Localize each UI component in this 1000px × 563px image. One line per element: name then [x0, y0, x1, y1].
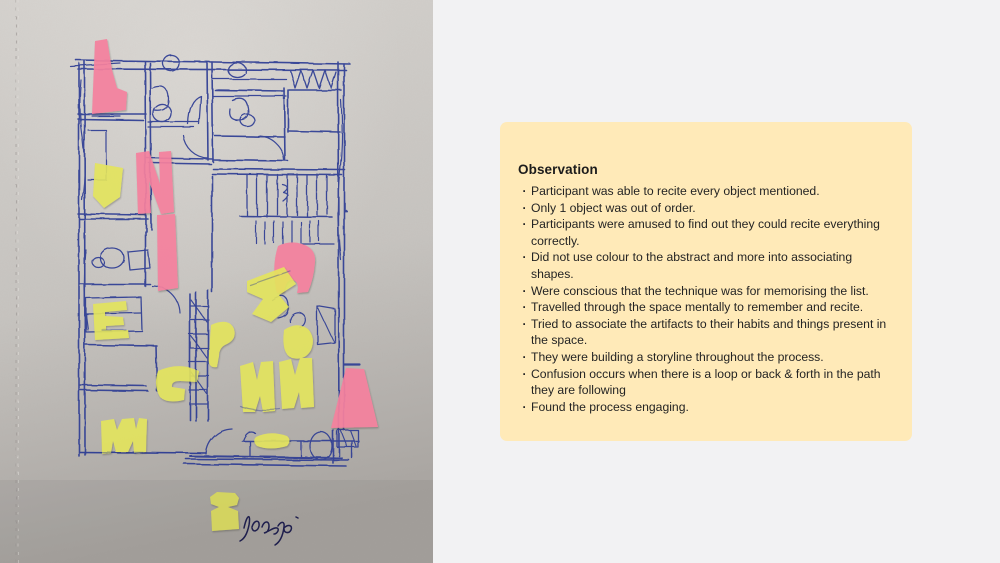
list-item: ·Were conscious that the technique was f… [518, 283, 888, 300]
list-item-text: Did not use colour to the abstract and m… [531, 249, 888, 282]
list-item: ·Confusion occurs when there is a loop o… [518, 366, 888, 399]
list-item: ·Participant was able to recite every ob… [518, 183, 888, 200]
list-item-text: Only 1 object was out of order. [531, 200, 888, 217]
list-item: ·Only 1 object was out of order. [518, 200, 888, 217]
yellow-round-blob-shape [283, 325, 313, 358]
list-item: ·They were building a storyline througho… [518, 349, 888, 366]
yellow-letter-w-shape [101, 418, 147, 454]
list-item: ·Did not use colour to the abstract and … [518, 249, 888, 282]
list-item: ·Found the process engaging. [518, 399, 888, 416]
paper-background [0, 0, 433, 563]
floor-plan-photo [0, 0, 433, 563]
bullet-dot: · [518, 200, 531, 217]
list-item-text: Were conscious that the technique was fo… [531, 283, 888, 300]
list-item-text: Participant was able to recite every obj… [531, 183, 888, 200]
list-item-text: Travelled through the space mentally to … [531, 299, 888, 316]
photo-bottom-shadow [0, 480, 433, 563]
list-item-text: Tried to associate the artifacts to thei… [531, 316, 888, 349]
bullet-dot: · [518, 183, 531, 200]
bullet-dot: · [518, 299, 531, 316]
bullet-dot: · [518, 283, 531, 300]
bullet-dot: · [518, 316, 531, 333]
bullet-dot: · [518, 249, 531, 266]
bullet-dot: · [518, 366, 531, 383]
list-item-text: Confusion occurs when there is a loop or… [531, 366, 888, 399]
list-item: ·Tried to associate the artifacts to the… [518, 316, 888, 349]
list-item-text: Found the process engaging. [531, 399, 888, 416]
list-item-text: They were building a storyline throughou… [531, 349, 888, 366]
card-title: Observation [518, 162, 888, 177]
list-item: ·Travelled through the space mentally to… [518, 299, 888, 316]
bullet-dot: · [518, 399, 531, 416]
slide: Observation ·Participant was able to rec… [0, 0, 1000, 563]
pink-bar-shape [157, 214, 178, 291]
observation-list: ·Participant was able to recite every ob… [518, 183, 888, 415]
bullet-dot: · [518, 216, 531, 233]
bullet-dot: · [518, 349, 531, 366]
list-item-text: Participants were amused to find out the… [531, 216, 888, 249]
yellow-oval-shape [254, 433, 289, 448]
list-item: ·Participants were amused to find out th… [518, 216, 888, 249]
observation-card: Observation ·Participant was able to rec… [500, 122, 912, 441]
